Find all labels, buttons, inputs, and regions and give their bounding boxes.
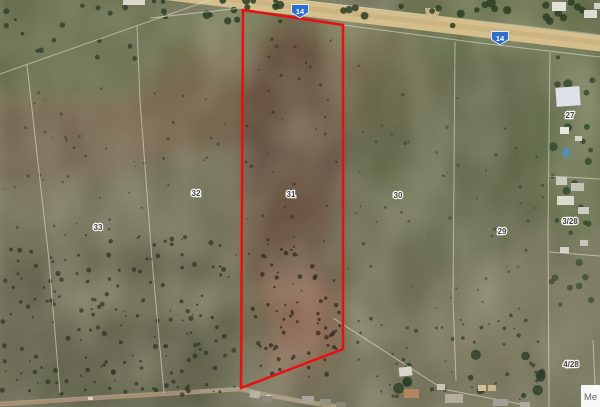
place-label-text: Me: [584, 392, 597, 403]
satellite-terrain: [0, 0, 600, 407]
swimming-pool: [563, 148, 569, 157]
map-canvas: 14 14 33 32 31 30 29 27 3/28 4/28 Me: [0, 0, 600, 407]
parcel-label: 30: [394, 191, 403, 200]
large-roof-building: [555, 86, 580, 107]
parcel-label: 29: [498, 227, 507, 236]
map-place-label-partial: Me: [581, 385, 600, 407]
terrain-grain: [0, 0, 600, 407]
satellite-map[interactable]: 14 14 33 32 31 30 29 27 3/28 4/28 Me: [0, 0, 600, 407]
parcel-label: 31: [287, 190, 296, 199]
parcel-label: 3/28: [562, 217, 578, 226]
route-number: 14: [296, 7, 305, 16]
route-number: 14: [496, 34, 505, 43]
parcel-label: 4/28: [563, 360, 579, 369]
parcel-label: 32: [192, 189, 201, 198]
parcel-label: 33: [94, 223, 103, 232]
parcel-label: 27: [566, 111, 575, 120]
